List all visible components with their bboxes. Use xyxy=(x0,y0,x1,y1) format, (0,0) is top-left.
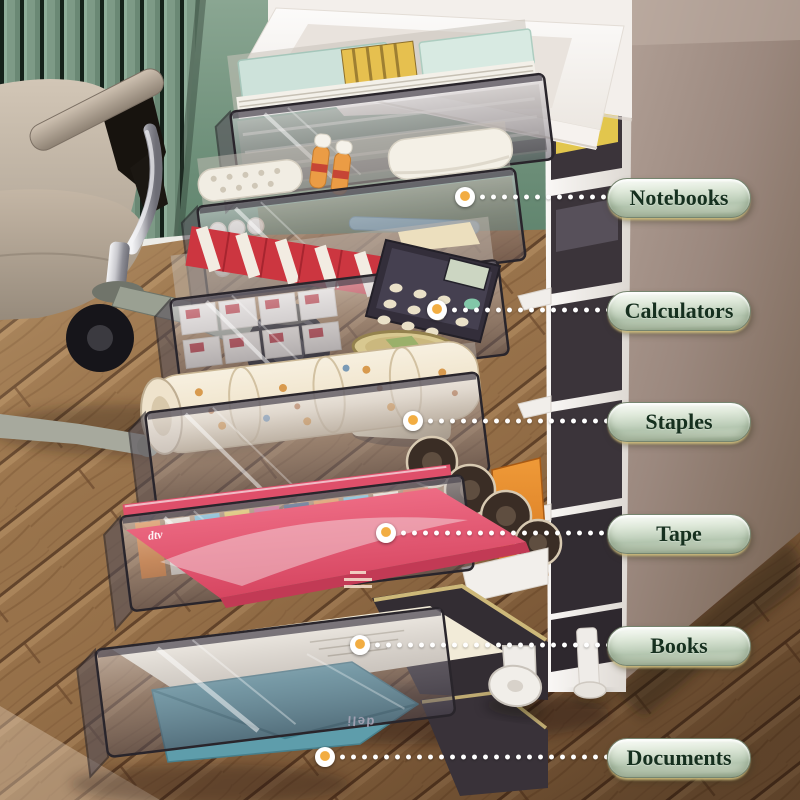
scene-illustration xyxy=(0,0,800,800)
product-photo: Notebooks Calculators Staples Tape Books… xyxy=(0,0,800,800)
